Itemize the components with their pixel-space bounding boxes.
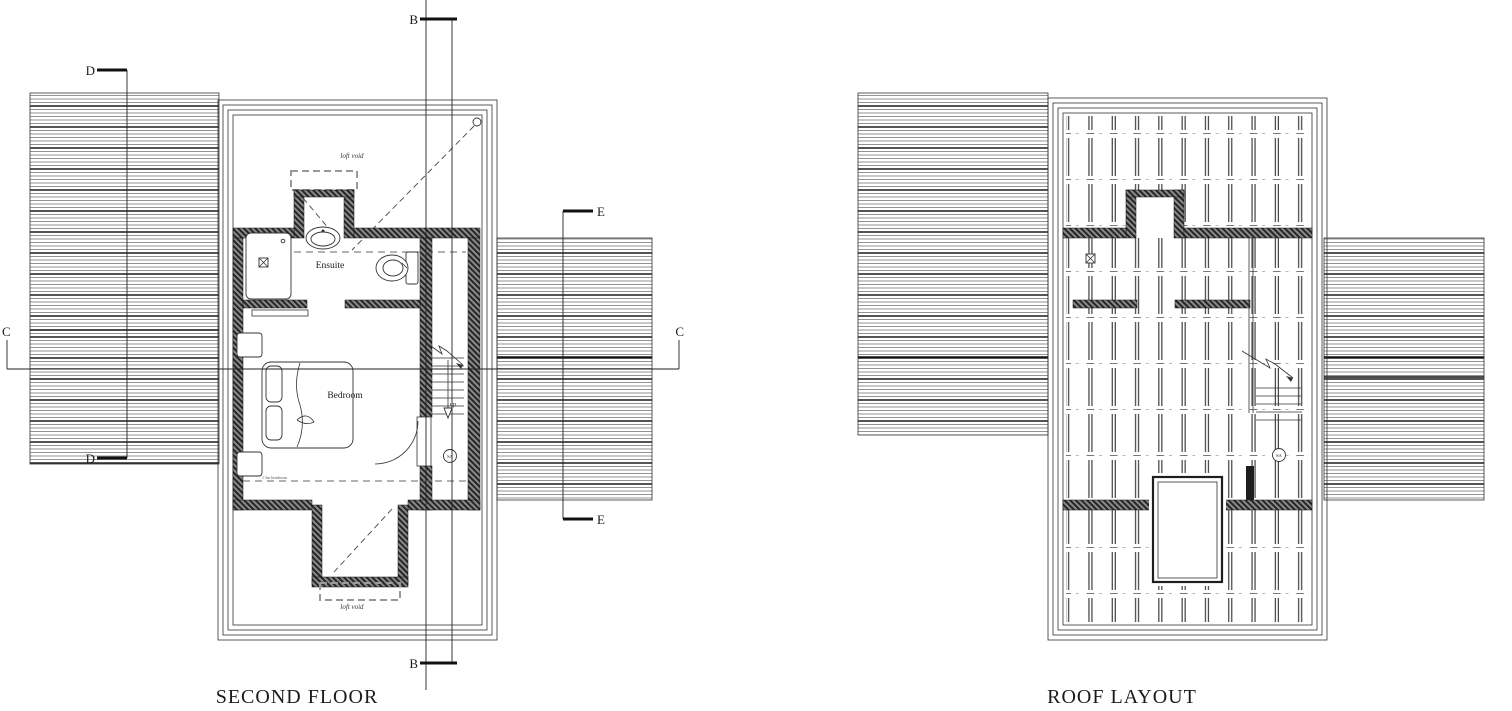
roof-bottom-void (1149, 473, 1226, 586)
door-leaf (417, 417, 431, 466)
smoke-alarm-label-second-floor: SA (447, 454, 454, 459)
smoke-alarm-second-floor: SA (444, 450, 457, 463)
extractor-symbol (259, 258, 268, 267)
bedside-table (237, 333, 262, 357)
shower-tray (246, 233, 291, 299)
bedside-table (237, 452, 262, 476)
section-c-left-label: C (2, 324, 11, 339)
section-e-bottom-label: E (597, 512, 605, 527)
toilet (376, 252, 418, 284)
extractor-symbol-roof (1086, 254, 1095, 263)
headroom-note-2: 1.5m headroom (262, 475, 288, 480)
dormer-diagonal (334, 509, 392, 572)
shelf (252, 310, 308, 316)
bottom-dormer (312, 505, 408, 600)
section-line-b: B B (409, 0, 457, 690)
bedroom-label: Bedroom (327, 391, 363, 401)
up-label: up (450, 402, 456, 408)
drawing-sheet: 1.5m headroom 1.5m headroom (0, 0, 1512, 711)
loft-void-bottom-label: loft void (340, 603, 364, 611)
section-d-bottom-label: D (86, 451, 95, 466)
bedroom-door (375, 417, 431, 466)
section-e-top-label: E (597, 204, 605, 219)
pillow (266, 406, 282, 440)
up-arrow (444, 408, 452, 418)
section-b-top-label: B (409, 12, 418, 27)
second-floor-left-roof-wing (30, 93, 219, 464)
shower-head (281, 239, 285, 243)
second-floor-outer-borders (218, 100, 497, 640)
roof-right-wing (1324, 238, 1484, 500)
second-floor-plan: 1.5m headroom 1.5m headroom (30, 93, 652, 708)
section-d-top-label: D (86, 63, 95, 78)
bedroom-furniture (237, 333, 353, 476)
smoke-alarm-roof: SA (1273, 449, 1286, 462)
rooflight-target-circle (473, 118, 481, 126)
roof-left-wing (858, 93, 1048, 435)
architectural-drawing-canvas: 1.5m headroom 1.5m headroom (0, 0, 1512, 711)
second-floor-title: SECOND FLOOR (216, 686, 379, 708)
wall-stub (1246, 466, 1254, 500)
dormer-roof-over-dashed (291, 171, 357, 190)
door-swing-arc (375, 421, 418, 464)
smoke-alarm-label-roof: SA (1276, 453, 1283, 458)
loft-void-top-label: loft void (340, 152, 364, 160)
section-b-bottom-label: B (409, 656, 418, 671)
section-c-right-label: C (675, 324, 684, 339)
pillow (266, 366, 282, 402)
roof-top-dormer (1126, 190, 1184, 238)
wash-basin (306, 227, 340, 249)
roof-layout-title: ROOF LAYOUT (1047, 686, 1197, 708)
roof-layout-plan: SA ROOF LAYOUT (858, 93, 1484, 708)
ensuite-label: Ensuite (316, 261, 345, 271)
